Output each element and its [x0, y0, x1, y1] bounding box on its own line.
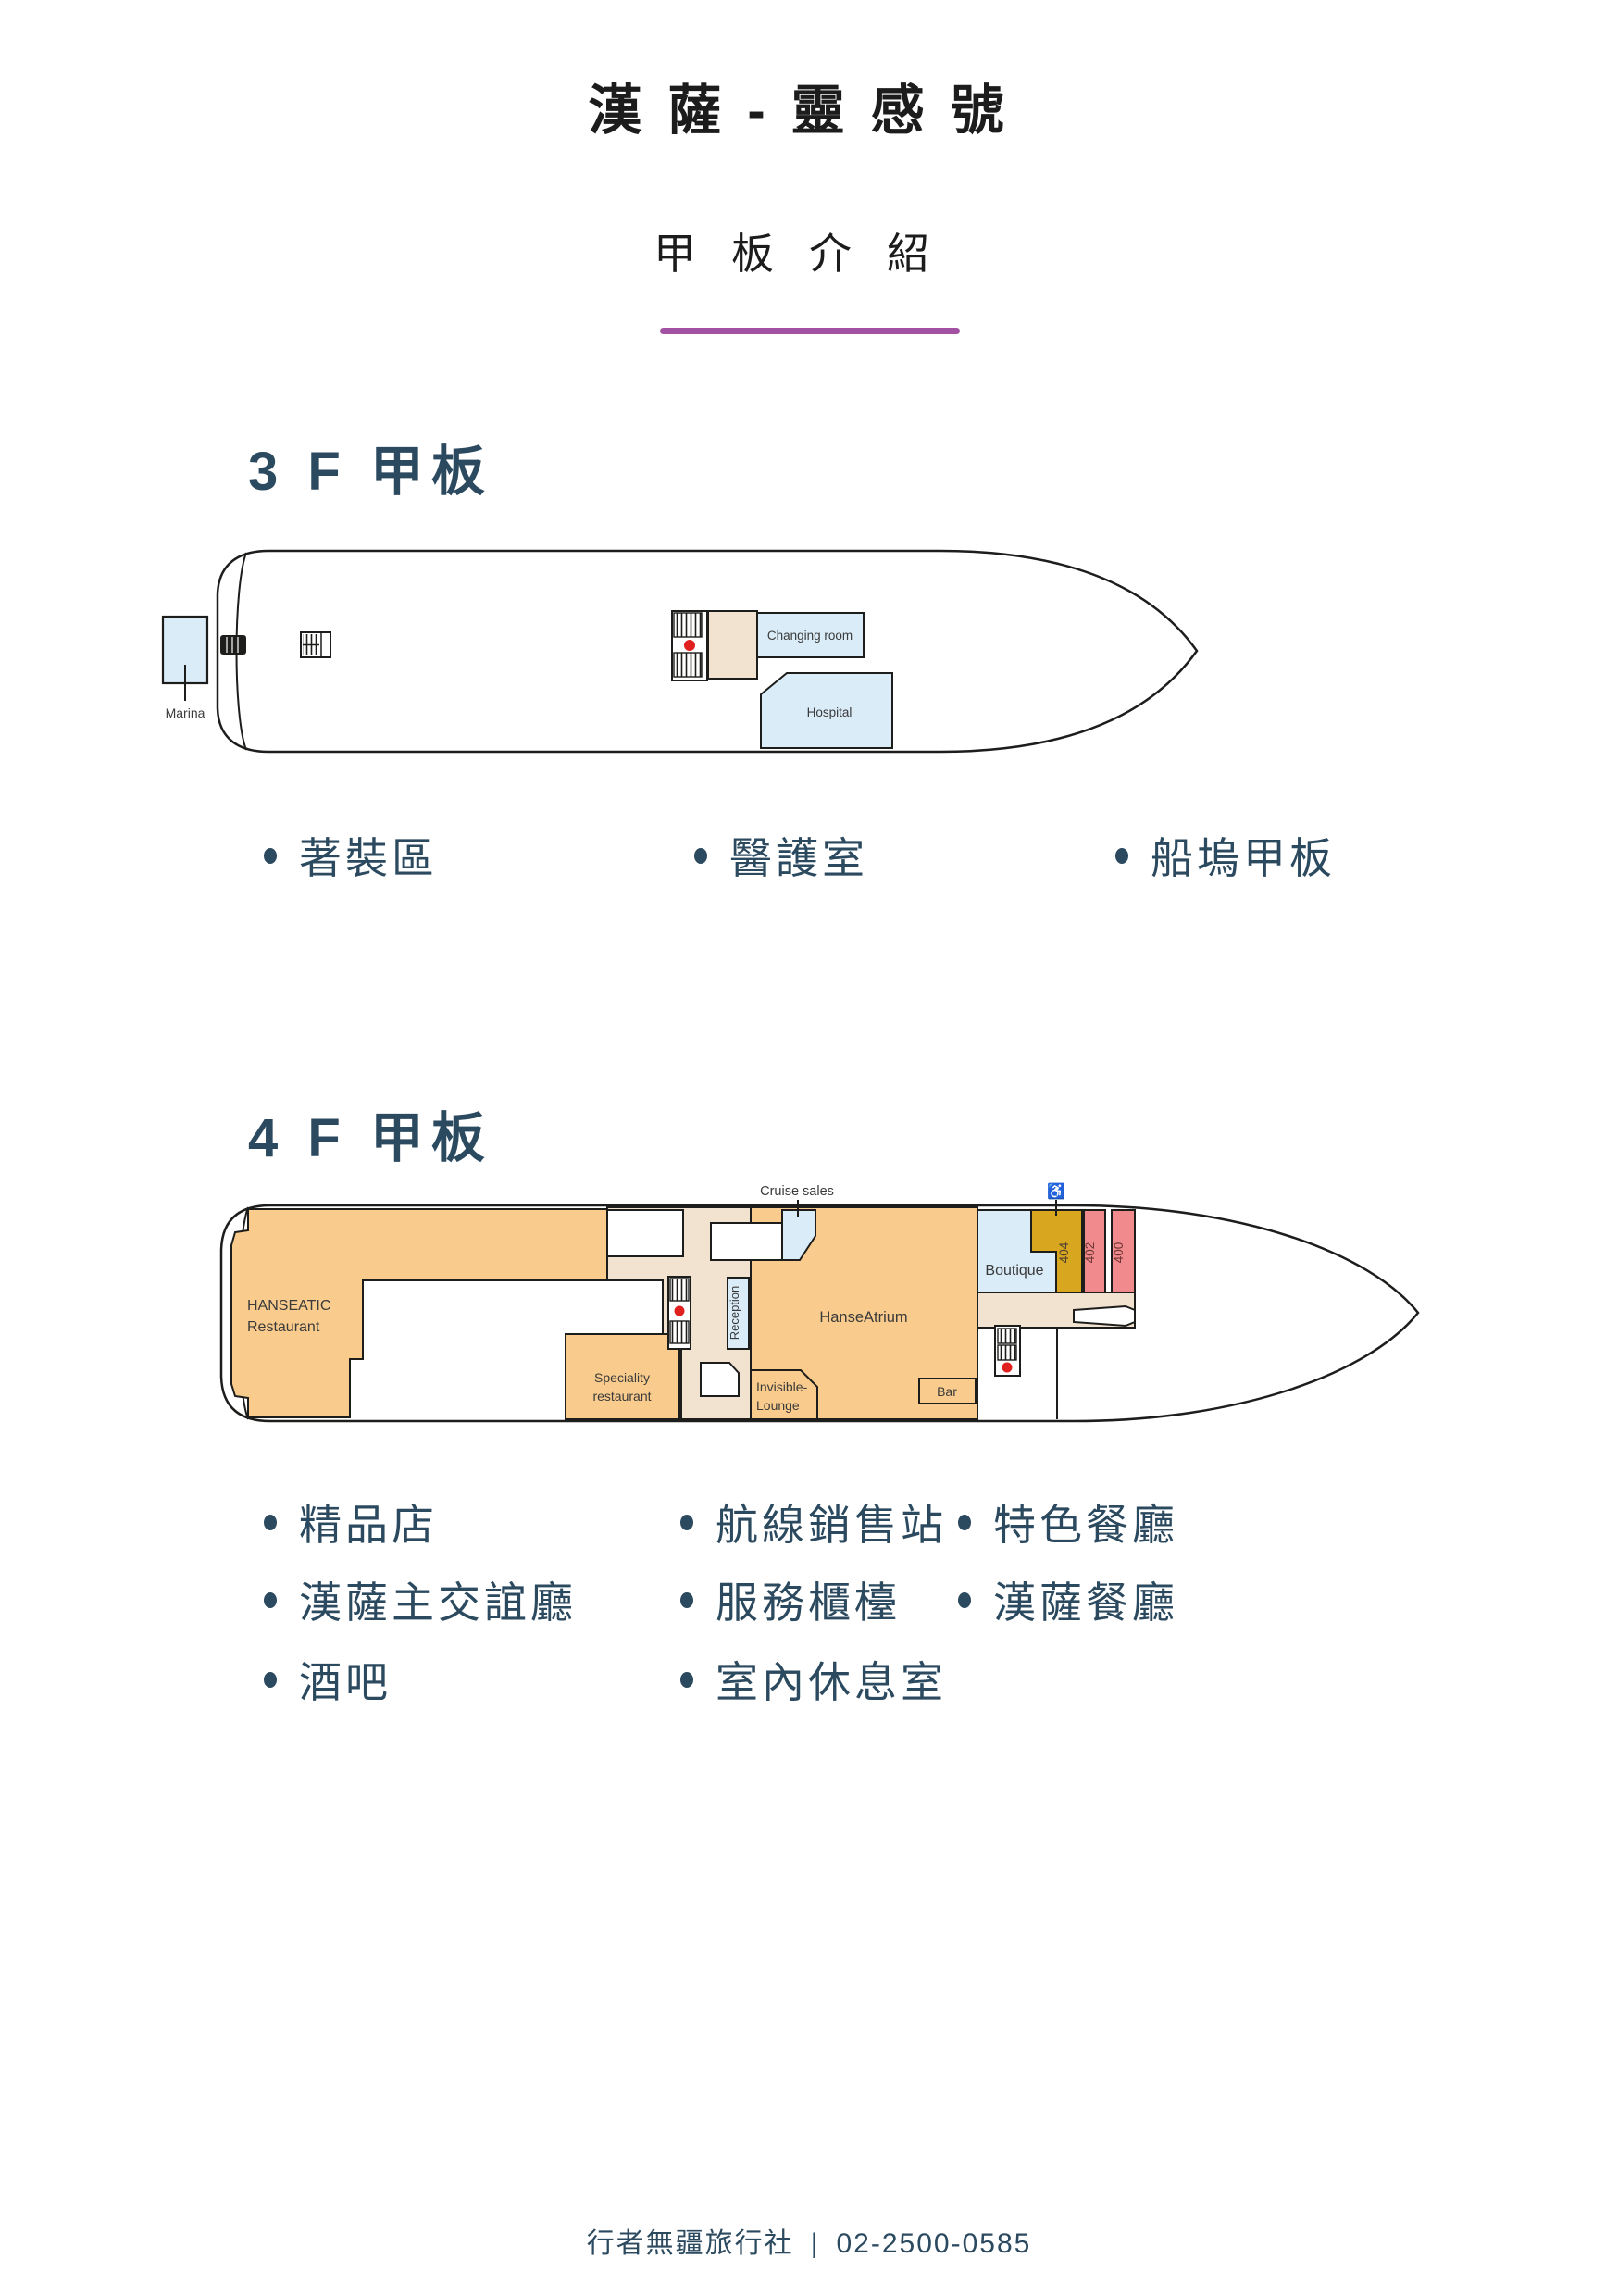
deck3-heading: 3 F 甲板 [248, 428, 492, 505]
feature-label: 航線銷售站 [716, 1491, 947, 1553]
bar-label: Bar [937, 1384, 957, 1399]
page-subtitle: 甲板介紹 [0, 220, 1618, 281]
feature-label: 漢薩餐廳 [993, 1569, 1178, 1630]
feature-label: 服務櫃檯 [716, 1569, 901, 1630]
hospital-label: Hospital [807, 705, 853, 719]
elevator-dot-icon [1002, 1363, 1013, 1373]
reception-label: Reception [728, 1286, 741, 1341]
speciality-restaurant-label-2: restaurant [592, 1389, 651, 1404]
bullet-dot [264, 1592, 277, 1608]
bullet-dot [264, 848, 277, 864]
stairs-icon [301, 632, 330, 657]
deck4-feature-item: 漢薩主交誼廳 [264, 1574, 577, 1626]
feature-label: 室內休息室 [716, 1649, 947, 1710]
bullet-dot [1115, 848, 1128, 864]
deck3-diagram: Marina Changing room Hospital [0, 518, 1618, 796]
bullet-dot [958, 1592, 971, 1608]
gangway-icon [220, 635, 246, 655]
phone-number: 02-2500-0585 [836, 2228, 1031, 2259]
feature-label: 船塢甲板 [1151, 825, 1336, 886]
invisible-lounge-label-1: Invisible- [756, 1379, 808, 1394]
deck4-feature-item: 漢薩餐廳 [958, 1574, 1178, 1626]
stairs-icon [674, 653, 702, 677]
bullet-dot [264, 1515, 277, 1530]
footer: 行者無疆旅行社|02-2500-0585 [0, 2220, 1618, 2261]
stairs-elevator-cluster [672, 611, 707, 680]
tender-boat-icon [1074, 1306, 1135, 1326]
stairs-icon [670, 1321, 689, 1343]
stairs-icon [674, 613, 702, 637]
cabin-402-label: 402 [1083, 1242, 1097, 1264]
cabin-404-label: 404 [1057, 1242, 1071, 1263]
agency-name: 行者無疆旅行社 [587, 2228, 794, 2259]
feature-label: 著裝區 [299, 825, 438, 886]
invisible-lounge-label-2: Lounge [756, 1398, 800, 1413]
stairs-icon [670, 1279, 689, 1301]
stairs-elevator-cluster [995, 1326, 1020, 1376]
deck-plan-page: 漢薩-靈感號 甲板介紹 3 F 甲板 Marina [0, 0, 1618, 2296]
feature-label: 醫護室 [729, 825, 868, 886]
hanse-atrium-label: HanseAtrium [819, 1309, 907, 1326]
boutique-label: Boutique [985, 1263, 1043, 1279]
page-title: 漢薩-靈感號 [0, 67, 1618, 144]
hanseatic-restaurant-label-1: HANSEATIC [247, 1298, 330, 1314]
marina-label: Marina [166, 705, 205, 720]
bullet-dot [680, 1672, 693, 1688]
bullet-dot [694, 848, 707, 864]
bullet-dot [680, 1515, 693, 1530]
cruise-sales-label: Cruise sales [760, 1184, 834, 1199]
deck4-diagram: HANSEATIC Restaurant HanseAtrium Cruise … [0, 1171, 1618, 1440]
deck4-feature-item: 特色餐廳 [958, 1496, 1178, 1548]
deck3-feature-item: 著裝區 [264, 830, 438, 881]
deck4-feature-item: 室內休息室 [680, 1653, 947, 1705]
subtitle-underline [660, 328, 960, 334]
vestibule-area [708, 611, 757, 679]
feature-label: 漢薩主交誼廳 [299, 1569, 577, 1630]
deck4-feature-item: 酒吧 [264, 1653, 392, 1705]
bullet-dot [958, 1515, 971, 1530]
service-room [711, 1223, 782, 1260]
service-room [701, 1363, 739, 1396]
feature-label: 酒吧 [299, 1649, 392, 1710]
cabin-400-label: 400 [1112, 1242, 1126, 1264]
feature-label: 精品店 [299, 1491, 438, 1553]
bullet-dot [680, 1592, 693, 1608]
deck4-feature-item: 精品店 [264, 1496, 438, 1548]
footer-separator: | [811, 2228, 820, 2260]
deck4-feature-item: 服務櫃檯 [680, 1574, 901, 1626]
bullet-dot [264, 1672, 277, 1688]
service-room [607, 1210, 683, 1256]
stairs-elevator-cluster [668, 1277, 691, 1349]
elevator-dot-icon [675, 1306, 685, 1316]
wheelchair-icon: ♿ [1047, 1182, 1065, 1200]
stairs-icon [998, 1345, 1016, 1360]
speciality-restaurant-label-1: Speciality [594, 1370, 650, 1385]
deck4-feature-item: 航線銷售站 [680, 1496, 947, 1548]
stairs-icon [998, 1329, 1016, 1343]
deck3-feature-item: 船塢甲板 [1115, 830, 1336, 881]
feature-label: 特色餐廳 [993, 1491, 1178, 1553]
changing-room-label: Changing room [767, 629, 853, 643]
elevator-dot-icon [684, 640, 695, 651]
deck4-heading: 4 F 甲板 [248, 1094, 492, 1172]
deck3-feature-item: 醫護室 [694, 830, 868, 881]
hanseatic-restaurant-label-2: Restaurant [247, 1319, 320, 1335]
